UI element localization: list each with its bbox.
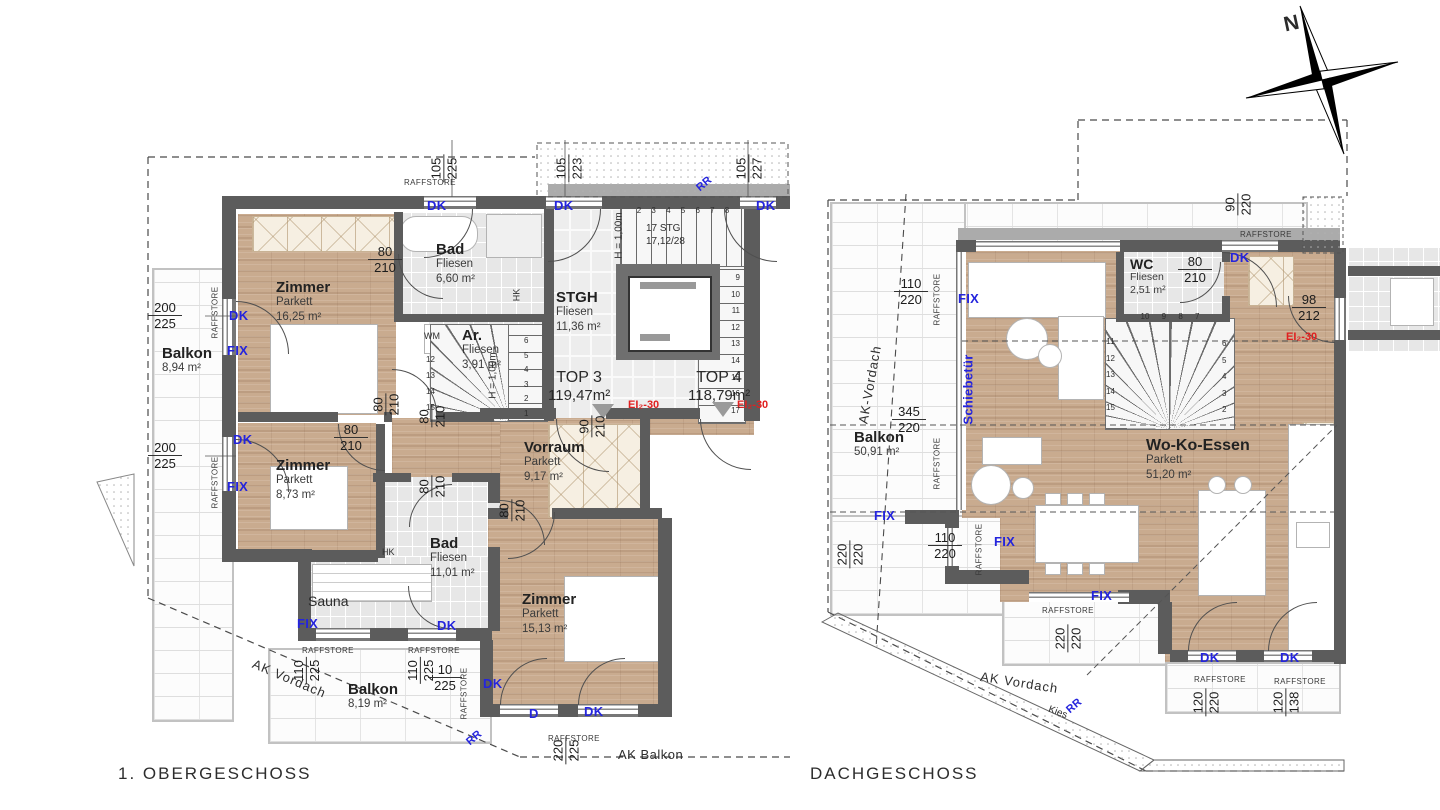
window-tag-dk: DK xyxy=(233,432,252,447)
wall-segment xyxy=(238,550,378,562)
plan-title-dg: DACHGESCHOSS xyxy=(810,764,979,784)
wall-segment xyxy=(1334,340,1346,664)
shower xyxy=(486,214,542,258)
window-tag-fix: FIX xyxy=(227,343,248,358)
wall-segment xyxy=(394,314,546,322)
wall-segment xyxy=(1236,650,1264,662)
room-name: Ar. xyxy=(462,328,501,343)
chair xyxy=(1089,493,1105,505)
wall-segment xyxy=(370,628,408,641)
wall-segment xyxy=(222,196,424,209)
room-name: Zimmer xyxy=(522,592,576,607)
raffstore-label: RAFFSTORE xyxy=(1274,677,1326,686)
window-tag-fix: FIX xyxy=(874,508,895,523)
raffstore-label: RAFFSTORE xyxy=(210,287,219,339)
dim-label: 120220 xyxy=(1182,678,1230,726)
dim-label: 200225 xyxy=(148,440,182,471)
dim-label: 80210 xyxy=(334,422,368,453)
window xyxy=(976,241,1120,251)
room-floor: Parkett xyxy=(522,607,576,622)
plan-title-og: 1. OBERGESCHOSS xyxy=(118,764,311,784)
elevator-cutoff xyxy=(1390,278,1434,326)
room-label-wohn-koch-essen: Wo-Ko-Essen Parkett 51,20 m² xyxy=(1146,438,1250,483)
dim-label: 80210 xyxy=(362,380,410,428)
dim-label: 110220 xyxy=(894,276,928,307)
door-arc xyxy=(700,419,751,470)
wall-segment xyxy=(1278,240,1340,252)
room-name: Wo-Ko-Essen xyxy=(1146,438,1250,453)
stair-numbers: 11 12 13 14 15 xyxy=(1106,334,1115,417)
room-floor: Fliesen xyxy=(556,305,601,320)
dim-label: 80210 xyxy=(1178,254,1212,285)
dim-label: 80210 xyxy=(408,462,456,510)
wall-segment xyxy=(658,518,672,714)
unit-label-top3: TOP 3 119,47m² xyxy=(548,369,610,404)
window-tag-dk: DK xyxy=(427,198,446,213)
kitchen-sink xyxy=(1296,522,1330,548)
stool xyxy=(1012,477,1034,499)
wall-segment xyxy=(1334,248,1346,298)
window xyxy=(316,628,370,641)
sliding-door-tag: Schiebetür xyxy=(961,330,976,450)
room-label-balkon-sued: Balkon 8,19 m² xyxy=(348,682,398,712)
window-tag-dk: DK xyxy=(483,676,502,691)
room-area: 8,73 m² xyxy=(276,488,330,503)
window-tag-dk: DK xyxy=(1280,650,1299,665)
dim-label: 98212 xyxy=(1292,292,1326,323)
room-floor: Fliesen xyxy=(430,551,475,566)
raffstore-label: RAFFSTORE xyxy=(932,274,941,326)
stair-numbers: 6 5 4 3 2 xyxy=(1222,336,1226,419)
wall-segment xyxy=(1348,330,1440,340)
stair-height-label: H = 1,00m xyxy=(614,212,625,258)
dim-label: 200225 xyxy=(148,300,182,331)
fire-rating-label: EI₂-30 xyxy=(1286,331,1317,343)
room-label-balkon-west: Balkon 8,94 m² xyxy=(162,346,212,376)
raffstore-label: RAFFSTORE xyxy=(1042,606,1094,615)
stair-numbers: 6 5 4 3 2 1 xyxy=(524,334,528,421)
wall-segment xyxy=(945,570,1029,584)
wall-segment xyxy=(1348,266,1440,276)
wall-segment xyxy=(222,355,236,437)
kitchen-island xyxy=(1198,490,1266,596)
room-floor: Parkett xyxy=(1146,453,1250,468)
wall-segment xyxy=(640,419,650,516)
room-name: Zimmer xyxy=(276,458,330,473)
window xyxy=(1334,298,1346,340)
room-area: 8,94 m² xyxy=(162,361,212,376)
fire-rating-label: EI₂-30 xyxy=(737,399,768,411)
stair-numbers: 9 10 11 12 13 14 15 16 17 xyxy=(728,270,740,419)
floorplan-canvas: 1. OBERGESCHOSS Zimmer Parkett 16,25 m² … xyxy=(0,0,1440,810)
dim-label: 80210 xyxy=(368,244,402,275)
wall-segment xyxy=(238,412,338,422)
dim-label: 10225 xyxy=(428,662,462,693)
chair xyxy=(1067,493,1083,505)
wall-segment xyxy=(1170,650,1188,662)
terrain-hatch xyxy=(97,474,134,566)
gravel-band xyxy=(1140,760,1344,771)
raffstore-label: RAFFSTORE xyxy=(459,668,468,720)
raffstore-label: RAFFSTORE xyxy=(1194,675,1246,684)
stair-numbers: 10 9 8 7 xyxy=(1128,312,1212,321)
unit-name: TOP 4 xyxy=(688,369,750,387)
raffstore-label: RAFFSTORE xyxy=(1240,230,1292,239)
room-area: 15,13 m² xyxy=(522,622,576,637)
canopy-label: AK Vordach xyxy=(979,670,1059,695)
room-label-zimmer1: Zimmer Parkett 16,25 m² xyxy=(276,280,330,325)
sofa xyxy=(1058,316,1104,400)
window-tag-dk: DK xyxy=(756,198,775,213)
dining-table xyxy=(1035,505,1139,563)
wall-segment xyxy=(222,209,236,299)
wall-segment xyxy=(476,196,546,209)
room-area: 50,91 m² xyxy=(854,445,904,460)
window-tag-dk: DK xyxy=(584,704,603,719)
room-area: 11,36 m² xyxy=(556,320,601,335)
raffstore-label: RAFFSTORE xyxy=(302,646,354,655)
wall-segment xyxy=(1158,602,1172,654)
window-tag-dk: DK xyxy=(437,618,456,633)
dim-label: 80210 xyxy=(488,486,536,534)
window-tag-fix: FIX xyxy=(958,291,979,306)
wall-segment xyxy=(1116,252,1124,322)
window-tag-dk: DK xyxy=(554,198,573,213)
raffstore-label: RAFFSTORE xyxy=(974,524,983,576)
room-area: 6,60 m² xyxy=(436,272,475,287)
unit-name: TOP 3 xyxy=(548,369,610,387)
room-label-zimmer3: Zimmer Parkett 15,13 m² xyxy=(522,592,576,637)
room-floor: Parkett xyxy=(276,473,330,488)
room-label-stgh: STGH Fliesen 11,36 m² xyxy=(556,290,601,335)
room-name: Sauna xyxy=(308,594,348,609)
room-area: 11,01 m² xyxy=(430,566,475,581)
wall-segment xyxy=(945,514,959,528)
wall-segment xyxy=(222,491,236,557)
wall-segment xyxy=(488,547,500,631)
room-area: 2,51 m² xyxy=(1130,284,1166,297)
window-tag-dk: DK xyxy=(229,308,248,323)
raffstore-label: RAFFSTORE xyxy=(932,438,941,490)
dim-label: 90210 xyxy=(568,402,616,450)
window-tag-dk: DK xyxy=(1230,250,1249,265)
room-floor: Parkett xyxy=(276,295,330,310)
wall-segment xyxy=(956,240,976,252)
room-name: WC xyxy=(1130,258,1166,271)
room-floor: Fliesen xyxy=(1130,271,1166,284)
room-name: Bad xyxy=(430,536,475,551)
dim-label: 105223 xyxy=(545,144,593,192)
stair-note: 17 STG 17,12/28 xyxy=(646,222,685,248)
chair xyxy=(1089,563,1105,575)
window xyxy=(1029,592,1129,602)
wall-segment xyxy=(1120,240,1222,252)
radiator-tag-hk: HK xyxy=(382,546,395,559)
raffstore-label: RAFFSTORE xyxy=(210,457,219,509)
room-floor: Fliesen xyxy=(436,257,475,272)
sideboard xyxy=(982,437,1042,465)
room-area: 9,17 m² xyxy=(524,470,585,485)
room-label-zimmer2: Zimmer Parkett 8,73 m² xyxy=(276,458,330,503)
room-name: Bad xyxy=(436,242,475,257)
wall-segment xyxy=(558,704,578,717)
window-tag-dk: DK xyxy=(1200,650,1219,665)
room-area: 16,25 m² xyxy=(276,310,330,325)
wall-segment xyxy=(1312,650,1340,662)
elevator-door xyxy=(640,282,696,289)
room-floor: Parkett xyxy=(524,455,585,470)
room-name: Balkon xyxy=(162,346,212,361)
sofa xyxy=(968,262,1106,318)
chair xyxy=(1067,563,1083,575)
room-label-sauna: Sauna xyxy=(308,594,348,609)
raffstore-label: RAFFSTORE xyxy=(404,178,456,187)
radiator-tag-hk: HK xyxy=(511,289,521,302)
washer-tag-wm: WM xyxy=(424,330,440,343)
dim-label: 345220 xyxy=(892,404,926,435)
room-label-wc: WC Fliesen 2,51 m² xyxy=(1130,258,1166,297)
window-tag-fix: FIX xyxy=(994,534,1015,549)
wall-segment xyxy=(480,640,493,706)
dim-label: 220220 xyxy=(1044,614,1092,662)
room-name: Balkon xyxy=(348,682,398,697)
wall-segment xyxy=(776,196,790,209)
side-table xyxy=(1038,344,1062,368)
elevator-detail xyxy=(640,334,670,341)
room-label-bad2: Bad Fliesen 11,01 m² xyxy=(430,536,475,581)
raffstore-label: RAFFSTORE xyxy=(548,734,600,743)
window-tag-fix: FIX xyxy=(297,616,318,631)
window-tag-fix: FIX xyxy=(227,479,248,494)
balcony-edge-label: AK Balkon xyxy=(618,748,683,761)
stair-numbers: 2 3 4 5 6 7 8 xyxy=(626,206,740,215)
dim-label: 220220 xyxy=(826,530,874,578)
raffstore-label: RAFFSTORE xyxy=(408,646,460,655)
dim-label: 105227 xyxy=(725,144,773,192)
room-name: STGH xyxy=(556,290,601,305)
wall-segment xyxy=(480,704,500,717)
chair xyxy=(1045,563,1061,575)
room-area: 8,19 m² xyxy=(348,697,398,712)
chair xyxy=(1045,493,1061,505)
dim-label: 110220 xyxy=(928,530,962,561)
room-label-bad1: Bad Fliesen 6,60 m² xyxy=(436,242,475,287)
round-table xyxy=(971,465,1011,505)
compass-rose xyxy=(1246,6,1398,154)
dim-label: 80210 xyxy=(408,392,456,440)
stair-height-label: H = 1,00m xyxy=(488,352,499,398)
dim-label: 90220 xyxy=(1214,180,1262,228)
fire-rating-label: EI₂-30 xyxy=(628,399,659,411)
wall-segment xyxy=(373,473,411,482)
bed xyxy=(564,576,660,662)
room-area: 51,20 m² xyxy=(1146,468,1250,483)
window-tag-fix: FIX xyxy=(1091,588,1112,603)
compass-north-label: N xyxy=(1282,11,1302,38)
room-name: Zimmer xyxy=(276,280,330,295)
window-tag-d: D xyxy=(529,706,539,721)
